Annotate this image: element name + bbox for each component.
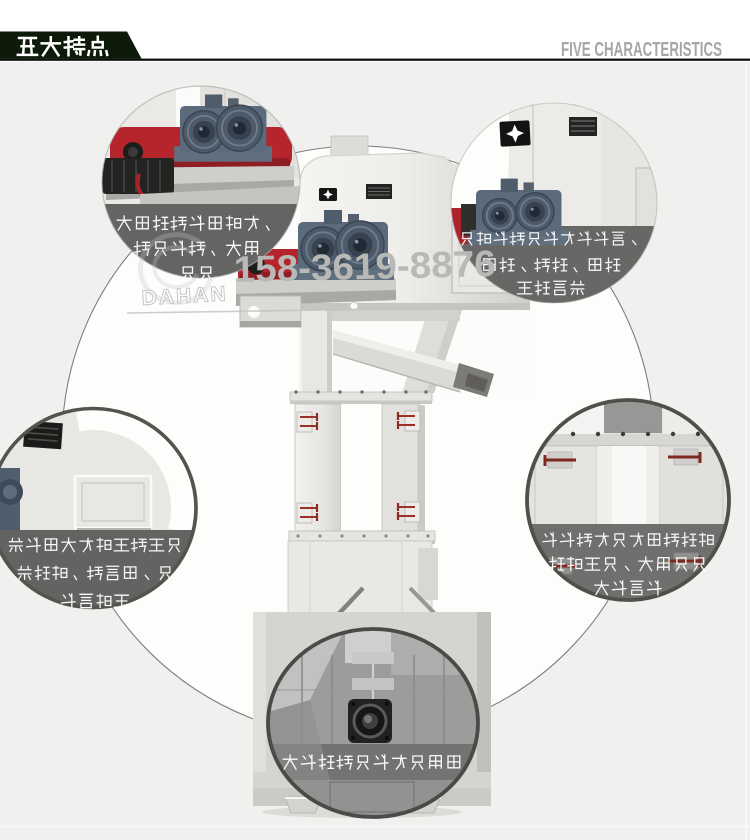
svg-text:FIVE CHARACTERISTICS: FIVE CHARACTERISTICS — [561, 38, 722, 61]
svg-text:DAHAN: DAHAN — [141, 283, 228, 310]
svg-text:158-3619-8876: 158-3619-8876 — [233, 243, 496, 290]
